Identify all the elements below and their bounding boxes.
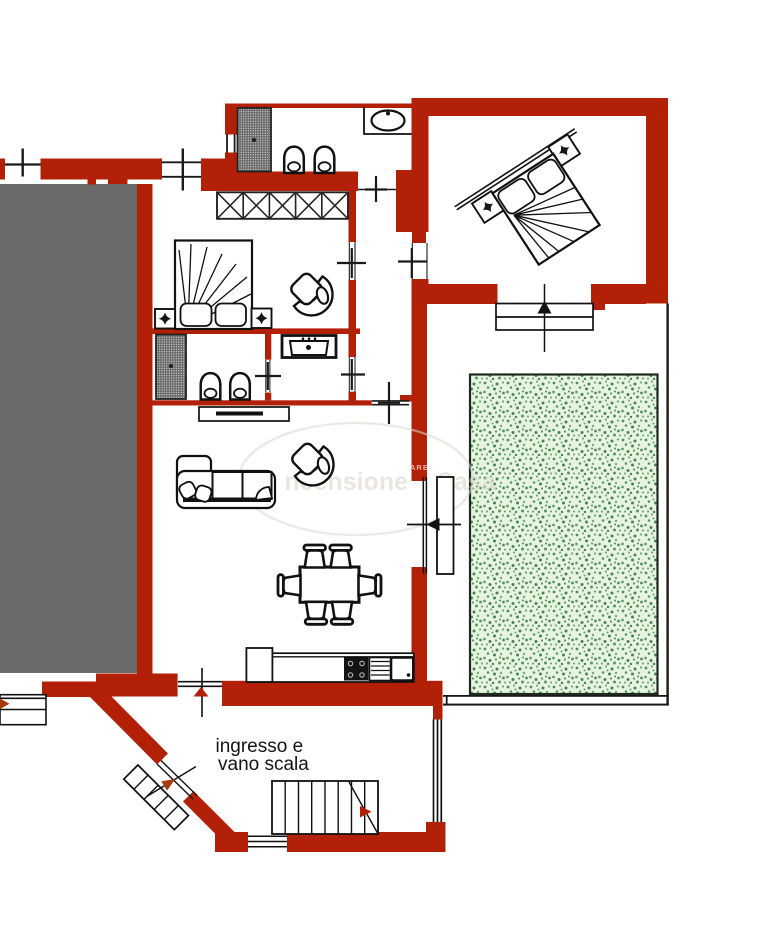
svg-text:ARE: ARE xyxy=(410,463,429,472)
svg-text:vano scala: vano scala xyxy=(218,754,309,775)
